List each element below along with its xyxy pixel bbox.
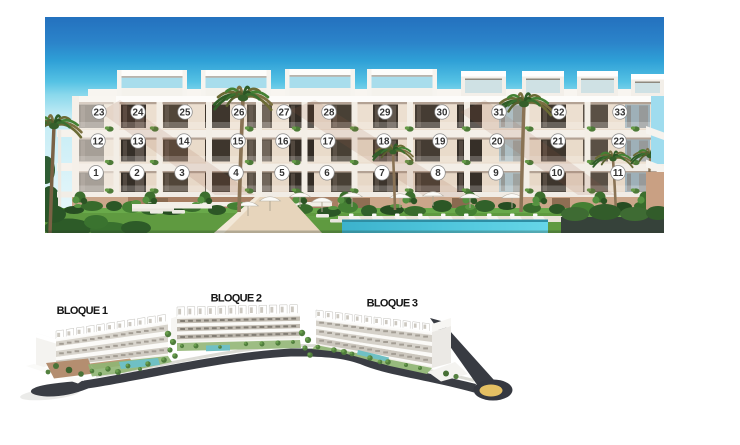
svg-text:10: 10 [552,168,563,179]
svg-text:3: 3 [179,168,185,179]
svg-text:BLOQUE 1: BLOQUE 1 [57,305,108,317]
svg-text:BLOQUE 2: BLOQUE 2 [211,293,262,305]
svg-text:33: 33 [615,107,626,118]
svg-text:25: 25 [180,107,191,118]
svg-text:26: 26 [234,107,245,118]
svg-text:17: 17 [323,136,334,147]
svg-text:29: 29 [380,107,391,118]
svg-text:11: 11 [613,168,624,179]
svg-text:12: 12 [93,136,104,147]
svg-text:18: 18 [379,136,390,147]
svg-text:30: 30 [437,107,448,118]
svg-text:19: 19 [435,136,446,147]
svg-text:6: 6 [324,168,330,179]
svg-text:7: 7 [379,168,385,179]
svg-text:31: 31 [494,107,505,118]
svg-text:BLOQUE 3: BLOQUE 3 [367,298,418,310]
svg-text:4: 4 [233,168,239,179]
svg-text:2: 2 [134,168,140,179]
svg-text:1: 1 [93,168,99,179]
svg-text:21: 21 [553,136,564,147]
svg-text:16: 16 [278,136,289,147]
svg-text:20: 20 [492,136,503,147]
svg-text:24: 24 [133,107,144,118]
svg-text:13: 13 [133,136,144,147]
svg-text:28: 28 [324,107,335,118]
svg-text:27: 27 [279,107,290,118]
svg-text:14: 14 [179,136,190,147]
svg-text:9: 9 [493,168,499,179]
svg-text:15: 15 [233,136,244,147]
svg-text:8: 8 [435,168,441,179]
svg-text:5: 5 [279,168,285,179]
svg-text:32: 32 [554,107,565,118]
svg-text:23: 23 [94,107,105,118]
svg-text:22: 22 [614,136,625,147]
